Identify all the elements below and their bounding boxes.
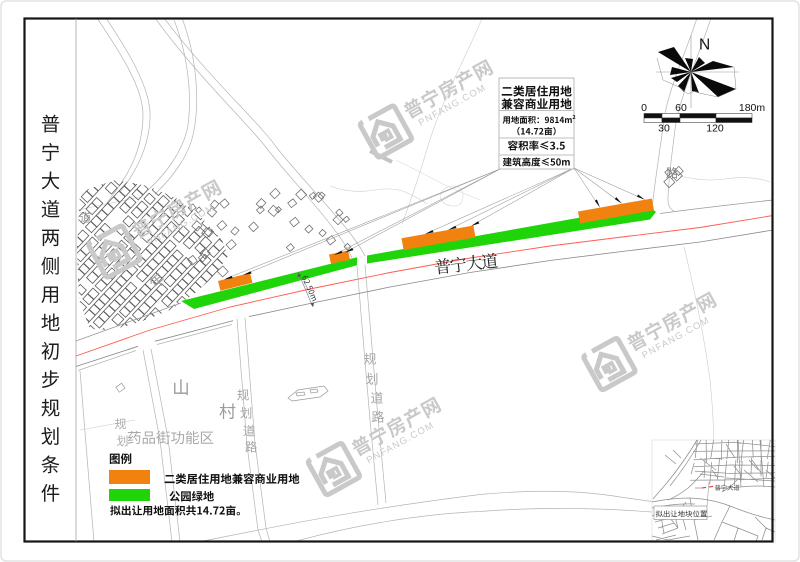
svg-text:0: 0 (641, 102, 647, 114)
svg-text:30: 30 (658, 123, 670, 135)
svg-text:60: 60 (675, 102, 687, 114)
svg-text:180m: 180m (739, 102, 766, 114)
svg-text:N: N (699, 37, 710, 54)
svg-text:120: 120 (706, 123, 724, 135)
